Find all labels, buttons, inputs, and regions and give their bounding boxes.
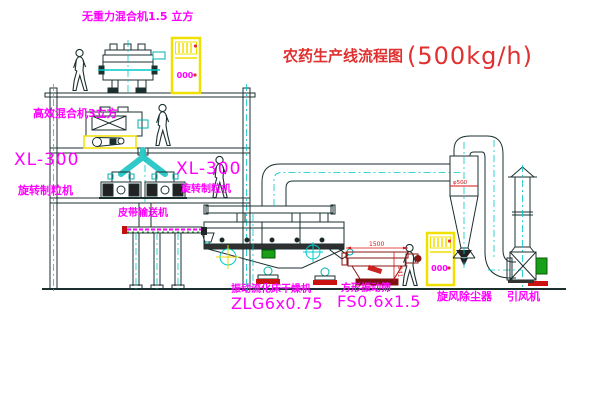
label-xl300-1: XL-300 — [14, 152, 79, 169]
indicator-dot — [194, 44, 197, 47]
fan-motor — [536, 258, 547, 274]
cabinet-readout: 000 — [431, 264, 448, 273]
indicator-dot — [448, 239, 451, 242]
dryer-support — [256, 267, 280, 284]
person-figure — [73, 49, 87, 90]
dryer-motor — [262, 250, 275, 258]
control-cabinet: 000 — [172, 38, 200, 93]
label-sieve-model: FS0.6x1.5 — [337, 294, 421, 310]
indicator-dot — [447, 266, 450, 269]
title-chinese: 农药生产线流程图 — [283, 47, 403, 68]
person-figure — [156, 104, 170, 145]
person-figure — [403, 244, 417, 285]
duct-centerlines — [464, 140, 522, 270]
label-granulator-1: 旋转制粒机 — [18, 185, 73, 196]
belt-conveyor — [122, 226, 207, 289]
label-fan: 引风机 — [507, 291, 540, 302]
indicator-dot — [193, 73, 196, 76]
cabinet-readout: 000 — [177, 71, 194, 80]
page-title: 农药生产线流程图 (500kg/h) — [283, 44, 533, 68]
label-dryer-model: ZLG6x0.75 — [231, 296, 323, 312]
induced-draft-fan — [507, 252, 548, 286]
label-xl300-2: XL-300 — [176, 161, 241, 178]
label-top-mixer: 无重力混合机1.5 立方 — [82, 11, 193, 22]
label-cyclone: 旋风除尘器 — [437, 291, 492, 302]
label-granulator-2: 旋转制粒机 — [181, 185, 231, 195]
control-cabinet: 000 — [427, 233, 454, 285]
pesticide-line-flow-diagram: 000 — [0, 0, 600, 403]
label-conveyor: 皮带输送机 — [118, 209, 168, 219]
label-mixer2: 高效混合机3立方 — [33, 108, 118, 119]
dimension-text: φ500 — [453, 180, 468, 186]
gravity-free-mixer — [98, 40, 165, 93]
dimension-text: 941 — [396, 266, 403, 278]
dimension-text: 1500 — [369, 241, 384, 248]
title-capacity: (500kg/h) — [407, 44, 533, 68]
fluid-bed-dryer — [202, 205, 353, 288]
dryer-support — [313, 268, 337, 285]
exhaust-duct — [262, 164, 461, 206]
